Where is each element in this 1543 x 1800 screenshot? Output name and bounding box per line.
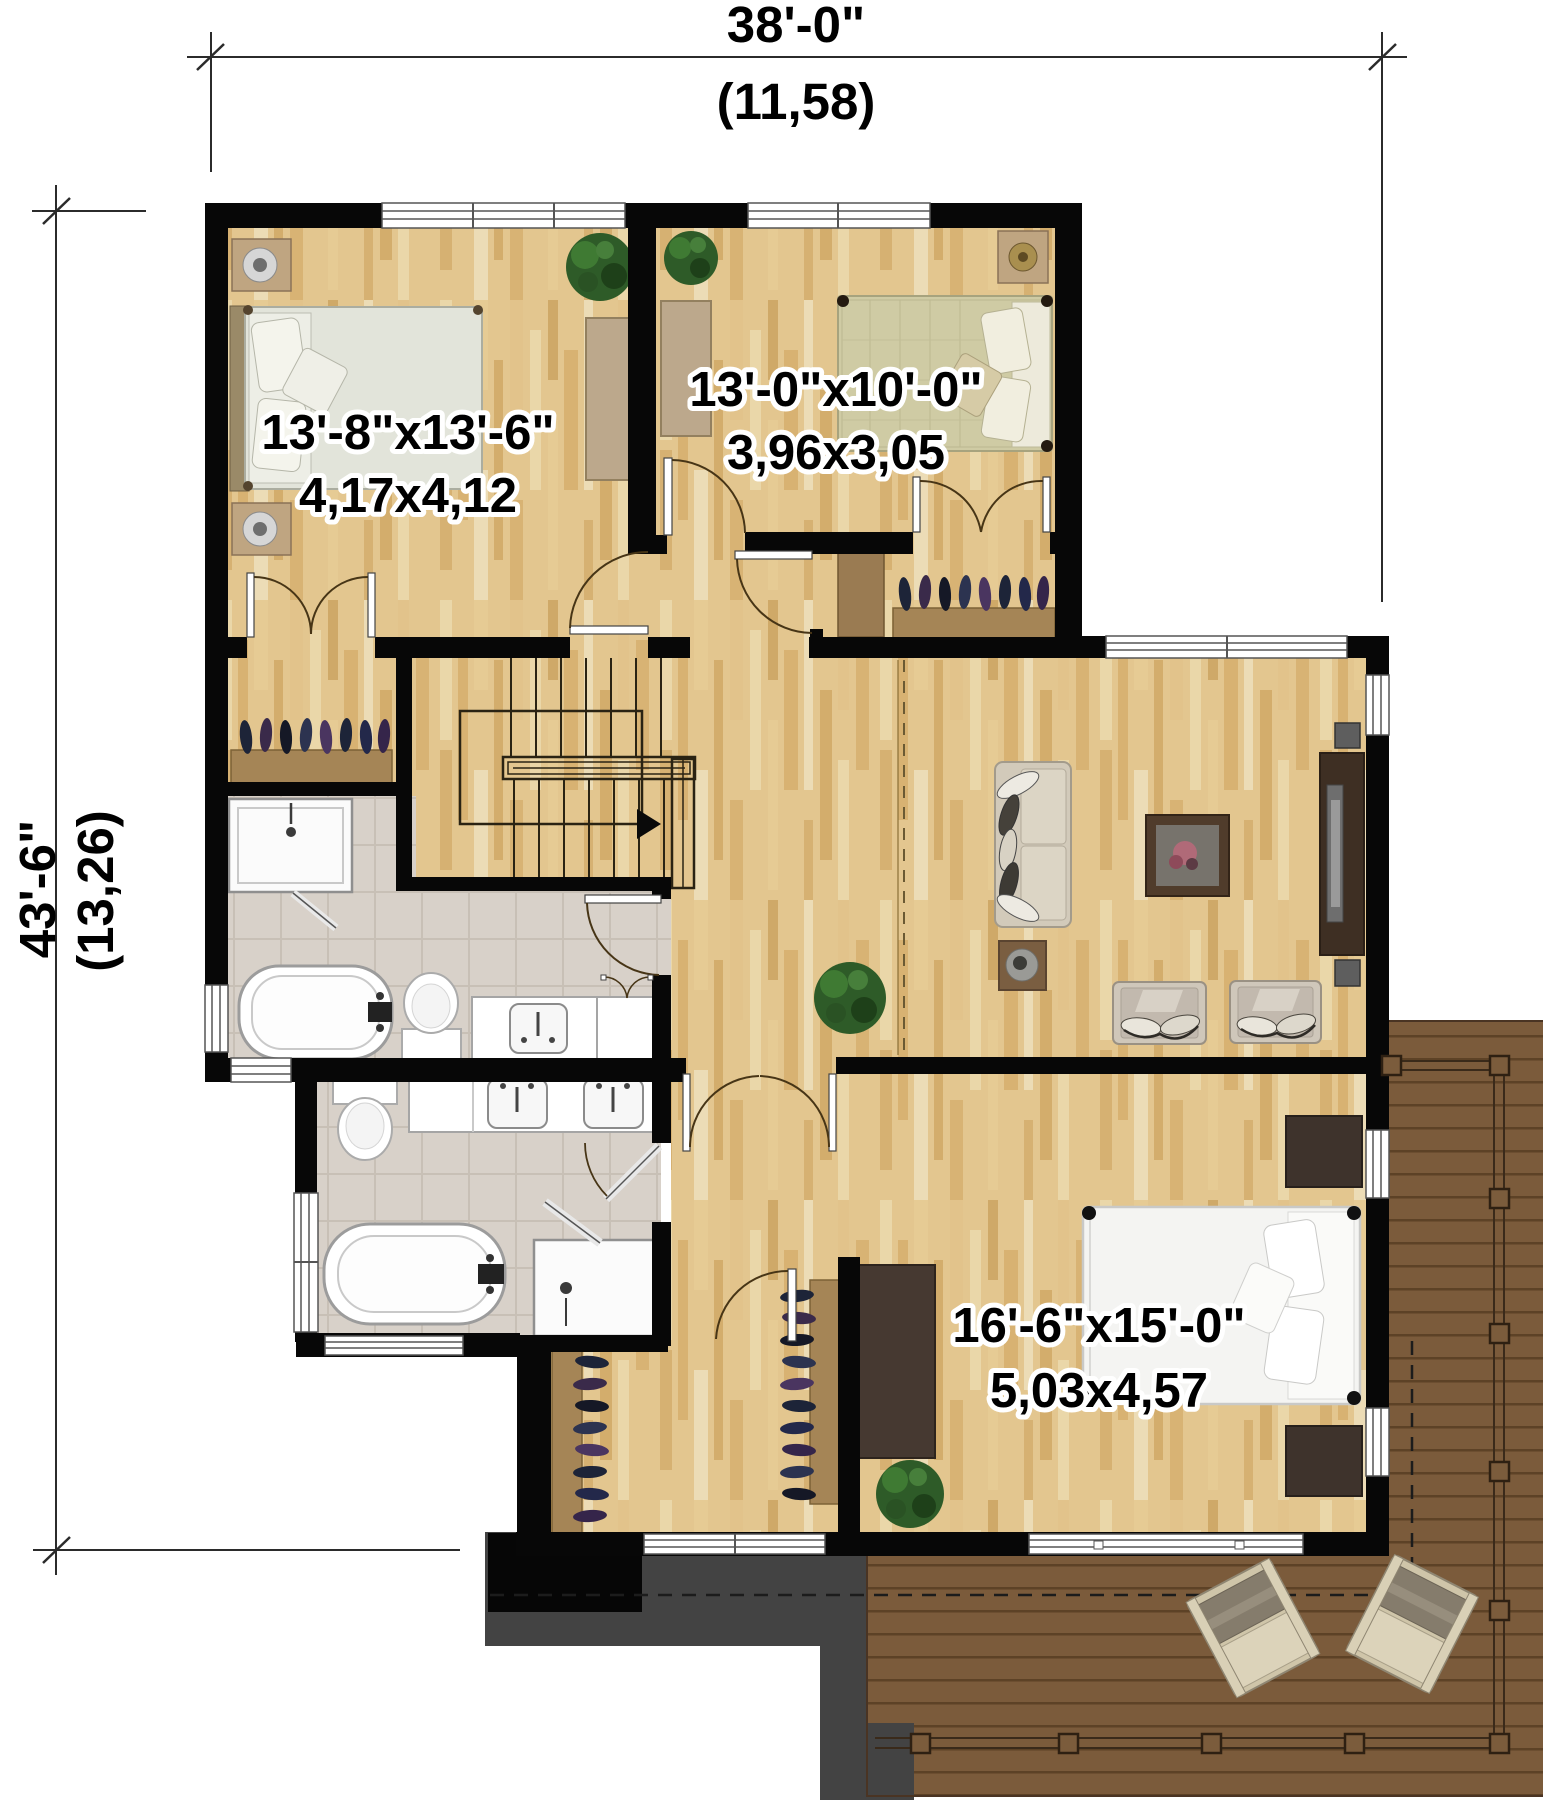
svg-text:13'-8"x13'-6": 13'-8"x13'-6" xyxy=(261,406,554,460)
svg-text:16'-6"x15'-0": 16'-6"x15'-0" xyxy=(952,1299,1245,1353)
svg-text:43'-6": 43'-6" xyxy=(9,820,66,958)
svg-text:4,17x4,12: 4,17x4,12 xyxy=(299,469,517,523)
svg-text:(11,58): (11,58) xyxy=(717,73,876,130)
svg-text:38'-0": 38'-0" xyxy=(727,0,865,53)
svg-text:13'-0"x10'-0": 13'-0"x10'-0" xyxy=(689,363,982,417)
svg-text:(13,26): (13,26) xyxy=(67,810,124,972)
svg-text:3,96x3,05: 3,96x3,05 xyxy=(727,426,945,480)
svg-text:5,03x4,57: 5,03x4,57 xyxy=(990,1364,1208,1418)
